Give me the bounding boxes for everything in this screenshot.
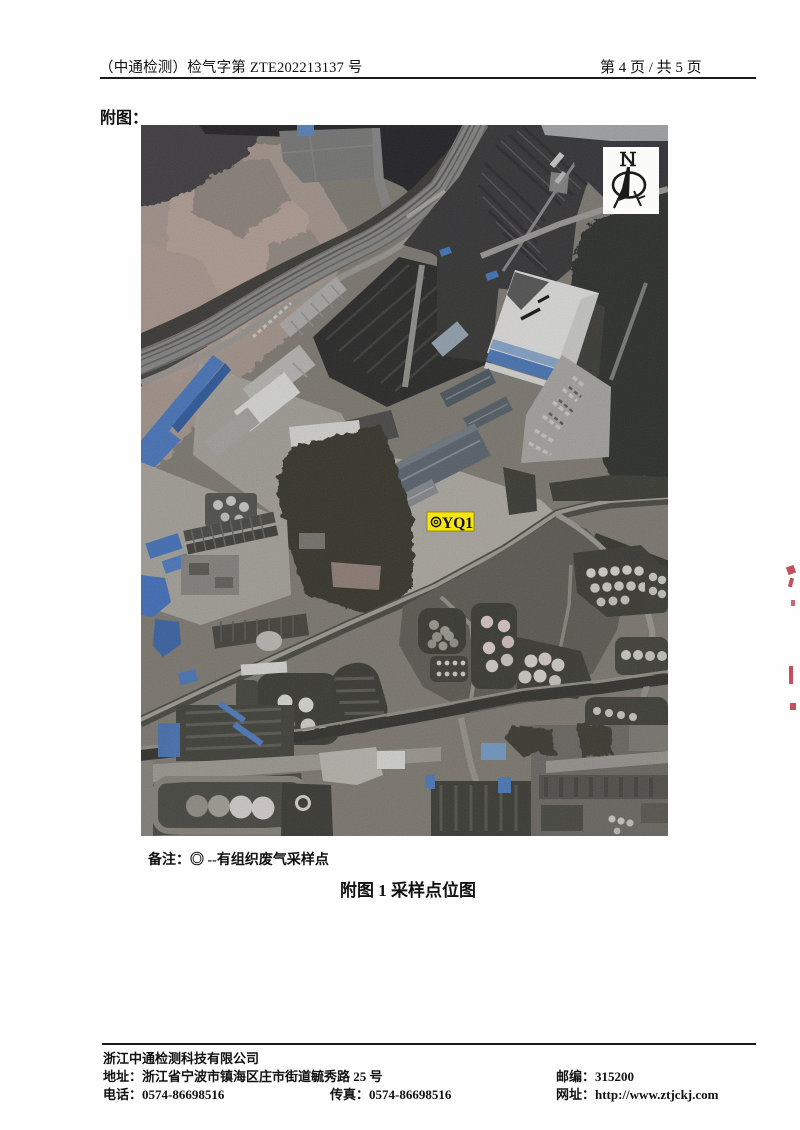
svg-text:YQ1: YQ1 <box>442 515 473 532</box>
